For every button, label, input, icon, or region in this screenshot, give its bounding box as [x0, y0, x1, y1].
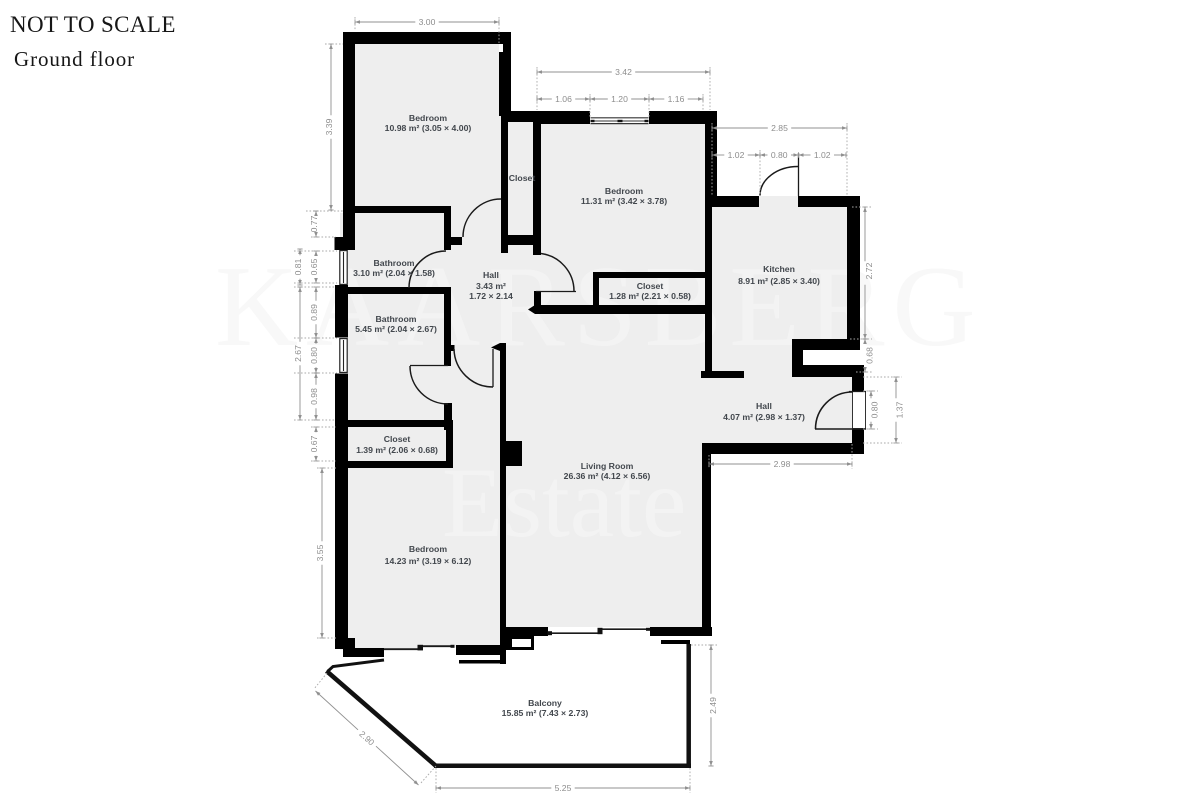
- svg-text:0.68: 0.68: [865, 347, 875, 364]
- svg-text:2.98: 2.98: [774, 459, 791, 469]
- svg-text:14.23 m² (3.19 × 6.12): 14.23 m² (3.19 × 6.12): [385, 556, 472, 566]
- svg-text:1.02: 1.02: [728, 150, 745, 160]
- svg-text:1.06: 1.06: [555, 94, 572, 104]
- svg-text:2.49: 2.49: [708, 697, 718, 714]
- svg-text:Estate: Estate: [442, 447, 686, 558]
- svg-text:Hall: Hall: [483, 270, 499, 280]
- svg-text:1.02: 1.02: [814, 150, 831, 160]
- svg-text:Bedroom: Bedroom: [409, 544, 447, 554]
- svg-text:3.10 m² (2.04 × 1.58): 3.10 m² (2.04 × 1.58): [353, 268, 435, 278]
- svg-text:Bedroom: Bedroom: [409, 113, 447, 123]
- svg-text:1.16: 1.16: [668, 94, 685, 104]
- svg-text:0.65: 0.65: [309, 258, 319, 275]
- svg-text:10.98 m² (3.05 × 4.00): 10.98 m² (3.05 × 4.00): [385, 123, 472, 133]
- svg-text:Closet: Closet: [384, 434, 411, 444]
- svg-text:Closet: Closet: [509, 173, 536, 183]
- svg-text:Bedroom: Bedroom: [605, 186, 643, 196]
- svg-text:1.20: 1.20: [611, 94, 628, 104]
- svg-text:11.31 m² (3.42 × 3.78): 11.31 m² (3.42 × 3.78): [581, 196, 667, 206]
- svg-text:1.28 m² (2.21 × 0.58): 1.28 m² (2.21 × 0.58): [609, 291, 691, 301]
- svg-text:5.45 m² (2.04 × 2.67): 5.45 m² (2.04 × 2.67): [355, 324, 437, 334]
- svg-text:0.89: 0.89: [309, 304, 319, 321]
- svg-text:5.25: 5.25: [555, 783, 572, 793]
- svg-text:2.67: 2.67: [293, 345, 303, 362]
- svg-text:Bathroom: Bathroom: [375, 314, 416, 324]
- svg-text:4.07 m² (2.98 × 1.37): 4.07 m² (2.98 × 1.37): [723, 412, 805, 422]
- svg-text:3.00: 3.00: [419, 17, 436, 27]
- svg-text:1.72 × 2.14: 1.72 × 2.14: [469, 291, 513, 301]
- svg-text:Living Room: Living Room: [581, 461, 634, 471]
- svg-text:0.77: 0.77: [309, 215, 319, 232]
- svg-text:Kitchen: Kitchen: [763, 264, 795, 274]
- svg-text:1.37: 1.37: [895, 401, 905, 418]
- svg-text:0.81: 0.81: [293, 258, 303, 275]
- svg-text:Hall: Hall: [756, 401, 772, 411]
- svg-text:3.39: 3.39: [324, 118, 334, 135]
- svg-text:3.43 m²: 3.43 m²: [476, 281, 506, 291]
- svg-text:Ground floor: Ground floor: [14, 47, 135, 71]
- svg-text:3.55: 3.55: [315, 544, 325, 561]
- svg-text:0.98: 0.98: [309, 388, 319, 405]
- svg-text:NOT TO SCALE: NOT TO SCALE: [10, 12, 176, 37]
- svg-text:Closet: Closet: [637, 281, 664, 291]
- svg-text:1.39 m² (2.06 × 0.68): 1.39 m² (2.06 × 0.68): [356, 445, 438, 455]
- svg-text:Balcony: Balcony: [528, 698, 562, 708]
- svg-text:2.85: 2.85: [771, 123, 788, 133]
- svg-text:26.36 m² (4.12 × 6.56): 26.36 m² (4.12 × 6.56): [564, 471, 651, 481]
- svg-text:0.80: 0.80: [771, 150, 788, 160]
- svg-text:0.80: 0.80: [870, 401, 880, 418]
- svg-text:2.72: 2.72: [864, 262, 874, 279]
- svg-text:8.91 m² (2.85 × 3.40): 8.91 m² (2.85 × 3.40): [738, 276, 820, 286]
- svg-text:0.80: 0.80: [309, 347, 319, 364]
- svg-text:3.42: 3.42: [615, 67, 632, 77]
- svg-text:0.67: 0.67: [309, 435, 319, 452]
- svg-text:Bathroom: Bathroom: [373, 258, 414, 268]
- svg-text:15.85 m² (7.43 × 2.73): 15.85 m² (7.43 × 2.73): [502, 708, 589, 718]
